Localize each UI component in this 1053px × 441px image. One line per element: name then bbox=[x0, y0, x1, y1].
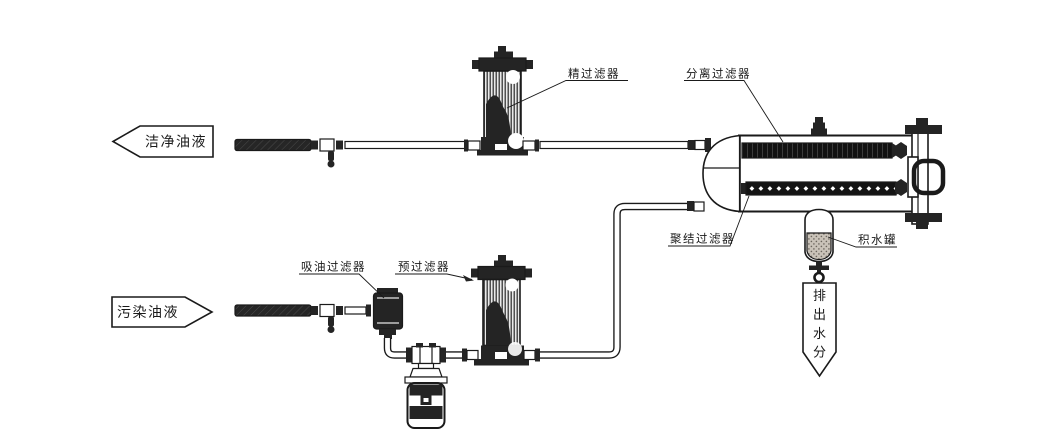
body-notch bbox=[506, 70, 520, 84]
pipe-union bbox=[320, 305, 334, 317]
union bbox=[523, 141, 535, 150]
fine-filter-annotation: 精过滤器 bbox=[507, 68, 628, 109]
drain-valve-stem bbox=[328, 151, 334, 161]
fine-filter-base bbox=[477, 150, 528, 156]
discharge-char-4: 分 bbox=[813, 345, 826, 360]
closure-bolt-top bbox=[905, 125, 942, 134]
contaminated-oil-label: 污染油液 bbox=[117, 305, 179, 321]
drain-valve-ball bbox=[328, 326, 335, 333]
vent-valve-base bbox=[811, 129, 827, 136]
bottom-cap-slit bbox=[495, 352, 507, 359]
pipe-nub bbox=[336, 141, 343, 150]
discharge-char-2: 出 bbox=[813, 307, 826, 322]
oil-filtration-diagram: 洁净油液 精过滤器 bbox=[0, 0, 1053, 441]
coalescing-element-endcap bbox=[741, 183, 746, 194]
tee-body bbox=[412, 347, 440, 364]
pipe-segment bbox=[345, 142, 465, 149]
fine-filter-knob bbox=[498, 46, 506, 52]
pipe-segment bbox=[540, 142, 688, 149]
bottom-cap-notch bbox=[508, 342, 522, 356]
pre-filter-base bbox=[474, 359, 529, 366]
pipe-union bbox=[320, 139, 334, 151]
separation-filter-label: 分离过滤器 bbox=[686, 67, 751, 81]
tank-drain-stem bbox=[816, 262, 822, 267]
riser-pipe bbox=[540, 207, 687, 356]
inlet-hose bbox=[235, 305, 311, 316]
flange bbox=[366, 305, 371, 317]
vent-valve-tip bbox=[815, 117, 823, 123]
closure-bolt-top-nut bbox=[916, 118, 928, 125]
tee-flange bbox=[406, 348, 412, 363]
union bbox=[468, 141, 480, 150]
body-slit bbox=[377, 322, 399, 324]
body-slit bbox=[377, 297, 399, 299]
outlet-hose bbox=[235, 140, 311, 151]
coalescing-filter-label: 聚结过滤器 bbox=[670, 233, 735, 246]
pipe-nub bbox=[688, 140, 695, 150]
pre-filter-label: 预过滤器 bbox=[398, 261, 450, 274]
pipe-segment bbox=[345, 307, 366, 314]
water-tank bbox=[805, 210, 833, 283]
pre-filter bbox=[462, 255, 540, 366]
drain-ring-handle bbox=[815, 273, 824, 282]
tank-drain-bar bbox=[809, 266, 829, 271]
flange bbox=[462, 349, 467, 362]
leader-line bbox=[684, 81, 783, 143]
body-notch bbox=[506, 279, 519, 292]
pipe-nub bbox=[687, 201, 694, 211]
vent-valve-mid bbox=[813, 123, 825, 129]
suction-filter-top-cap bbox=[377, 288, 398, 293]
discharge-char-3: 水 bbox=[813, 326, 826, 341]
contaminated-oil-flag: 污染油液 bbox=[112, 297, 212, 327]
tee-nub bbox=[429, 343, 436, 348]
pipe-nub bbox=[336, 306, 343, 315]
suction-filter bbox=[374, 288, 403, 339]
pump-adapter bbox=[410, 369, 442, 378]
fine-filter-top-cap bbox=[479, 58, 526, 71]
pump-neck bbox=[419, 364, 434, 369]
separation-filter-annotation: 分离过滤器 bbox=[684, 67, 783, 143]
swing-bolt bbox=[895, 142, 907, 159]
pre-filter-knob bbox=[498, 255, 506, 261]
pre-filter-annotation: 预过滤器 bbox=[395, 261, 474, 282]
suction-filter-annotation: 吸油过滤器 bbox=[299, 260, 384, 299]
leader-line bbox=[507, 81, 628, 109]
flange bbox=[535, 349, 540, 362]
tee-nub bbox=[416, 343, 423, 348]
clean-oil-label: 洁净油液 bbox=[145, 135, 207, 151]
suction-filter-bottom-cap bbox=[379, 329, 396, 335]
bottom-pipe bbox=[235, 305, 371, 334]
pipe-outline bbox=[540, 207, 687, 356]
junction-box-window bbox=[424, 398, 429, 402]
flange bbox=[464, 140, 468, 152]
pipe-nub bbox=[311, 141, 318, 150]
pipe-union bbox=[694, 202, 704, 211]
fine-filter bbox=[464, 46, 539, 156]
clean-oil-flag: 洁净油液 bbox=[113, 126, 213, 157]
discharge-char-1: 排 bbox=[813, 288, 826, 303]
fine-filter-label: 精过滤器 bbox=[568, 68, 620, 81]
drain-valve-ball bbox=[328, 161, 335, 168]
separation-filter-element bbox=[742, 143, 892, 158]
motor-band-bottom bbox=[410, 406, 443, 419]
pipe-nub bbox=[311, 306, 318, 315]
bottom-cap-notch bbox=[508, 133, 524, 149]
leader-line bbox=[395, 274, 472, 280]
pre-filter-top-cap bbox=[478, 267, 525, 280]
pipe-union bbox=[695, 141, 705, 150]
bottom-cap-slit bbox=[495, 144, 507, 151]
water-tank-annotation: 积水罐 bbox=[828, 234, 897, 248]
motor-band-top bbox=[410, 385, 443, 396]
suction-filter-label: 吸油过滤器 bbox=[301, 260, 366, 274]
tee-flange bbox=[440, 348, 446, 363]
discharge-water-flag: 排 出 水 分 bbox=[803, 283, 836, 376]
union bbox=[467, 351, 478, 360]
water-tank-label: 积水罐 bbox=[858, 234, 897, 247]
flange bbox=[535, 140, 539, 152]
leader-line bbox=[299, 274, 384, 298]
coalescing-filter-element bbox=[746, 182, 896, 195]
union bbox=[524, 351, 535, 360]
closure-bolt-bottom bbox=[905, 213, 942, 222]
drain-valve-stem bbox=[328, 317, 334, 327]
schematic-canvas: 洁净油液 精过滤器 bbox=[0, 0, 1053, 441]
pump-unit bbox=[405, 343, 447, 428]
closure-bolt-bottom-nut bbox=[916, 222, 928, 229]
collected-water bbox=[807, 233, 831, 260]
